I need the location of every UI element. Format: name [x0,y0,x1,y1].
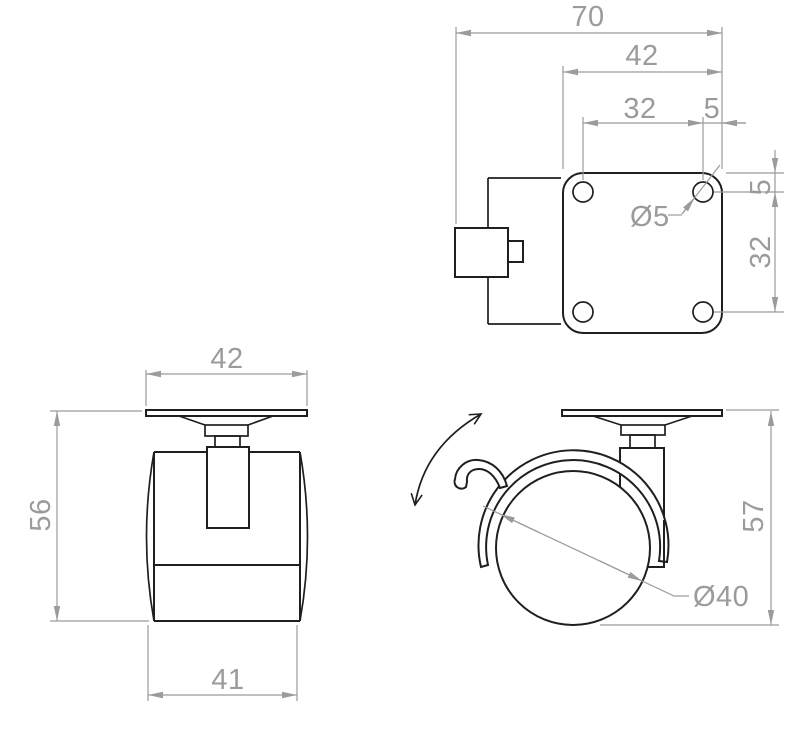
dim-label-top-hole-diameter: Ø5 [630,201,670,233]
dim-label-top-hole-pitch-x: 32 [623,93,656,125]
dim-label-top-hole-offset-x: 5 [704,93,721,125]
dim-label-front-overall-height: 56 [25,498,57,531]
caster-technical-drawing: 70 42 32 5 Ø5 5 [0,0,812,733]
plate-cone-side [593,416,692,425]
brake-lever-tab-top [508,241,523,262]
brake-lever-side [454,460,507,489]
dim-label-side-overall-height: 57 [738,499,770,532]
dim-label-side-wheel-diameter: Ø40 [693,581,749,613]
dim-label-front-wheel-width: 41 [211,664,244,696]
top-view: 70 42 32 5 Ø5 5 [455,1,784,333]
dim-label-top-plate-width: 42 [625,40,658,72]
dim-label-top-hole-offset-y: 5 [745,179,777,196]
stem-hub-side [621,425,665,435]
mounting-plate-front [146,410,307,416]
stem-housing-front [207,447,249,528]
dim-label-front-plate-width: 42 [210,343,243,375]
dim-label-top-hole-pitch-y: 32 [745,235,777,268]
stem-hub-front [205,425,248,436]
front-view: 42 56 41 [25,343,308,701]
brake-lever-top [455,228,508,277]
plate-cone-front [179,416,273,425]
technical-drawing-canvas: 70 42 32 5 Ø5 5 [0,0,812,733]
side-view: 57 Ø40 [415,410,779,625]
stem-neck-side [630,435,655,448]
dim-label-top-overall-width: 70 [571,1,604,33]
mounting-plate-side [562,410,722,416]
front-view-dimensions: 42 56 41 [25,343,307,701]
stem-neck-front [215,436,240,447]
mounting-plate-top [563,173,722,333]
